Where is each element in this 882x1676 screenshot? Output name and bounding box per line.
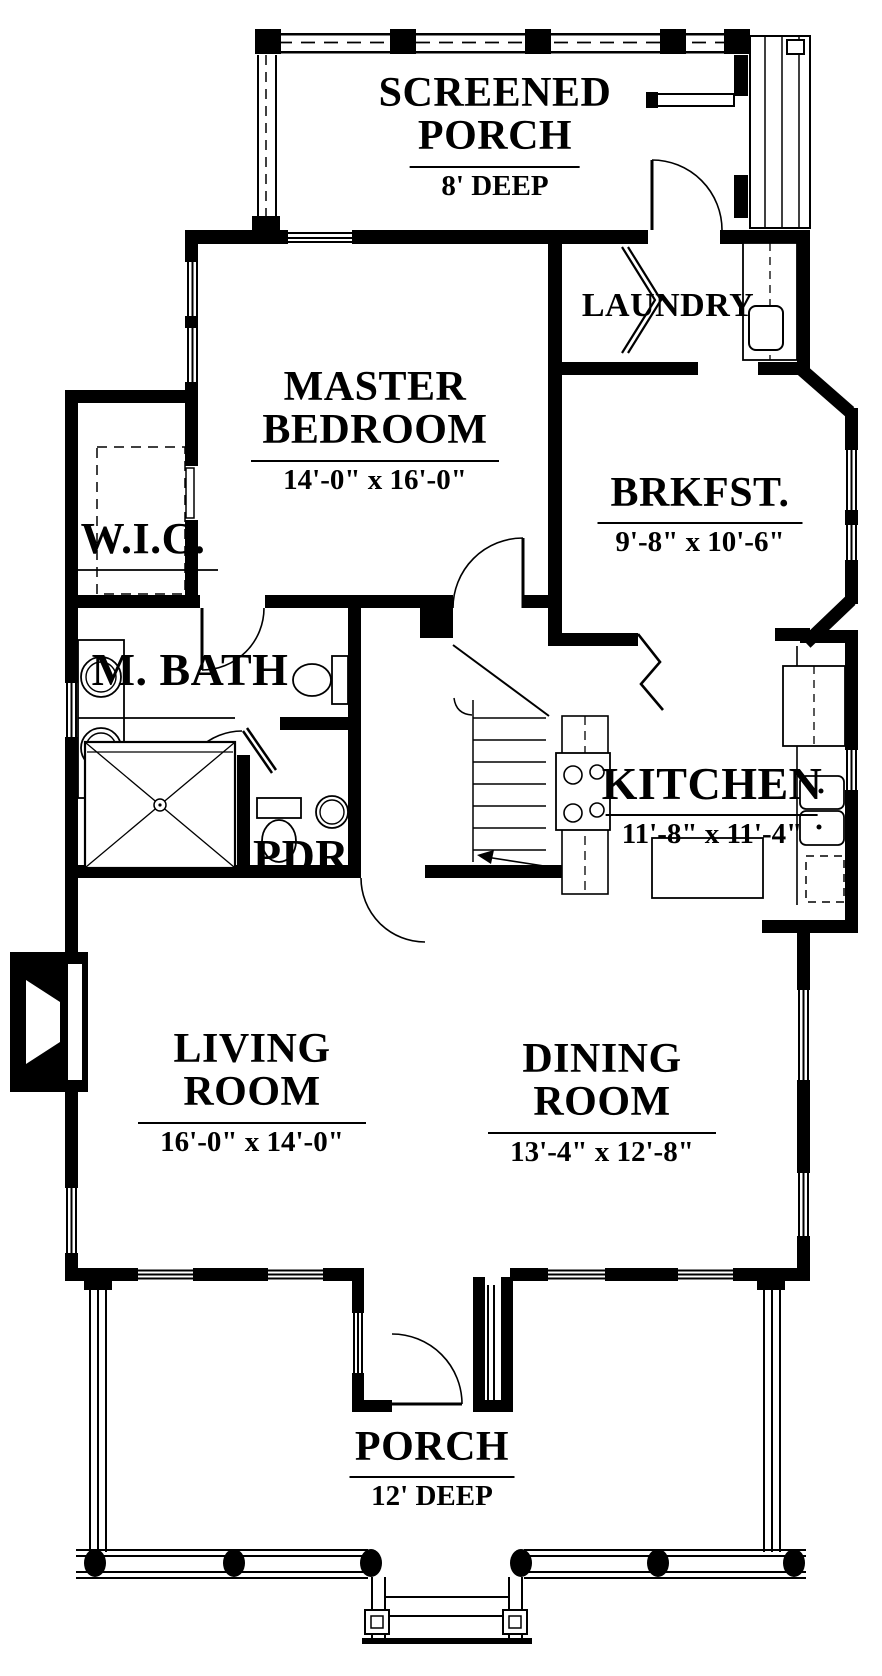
porch-post-icon bbox=[660, 29, 686, 54]
label-underline bbox=[138, 1122, 366, 1124]
room-name: BEDROOM bbox=[262, 409, 487, 452]
room-name: ROOM bbox=[183, 1071, 320, 1114]
fireplace-icon bbox=[10, 952, 88, 1092]
room-label-master-bedroom: MASTER BEDROOM 14'-0" x 16'-0" bbox=[251, 366, 499, 495]
room-name: PDR. bbox=[253, 832, 361, 879]
porch-post-icon bbox=[525, 29, 551, 54]
room-label-walk-in-closet: W.I.C. bbox=[81, 516, 206, 561]
porch-post-icon bbox=[390, 29, 416, 54]
door-swing-icon bbox=[361, 878, 425, 942]
porch-column-icon bbox=[647, 1549, 669, 1577]
room-dims: 12' DEEP bbox=[371, 1481, 493, 1511]
shower-icon bbox=[85, 742, 235, 868]
room-label-living-room: LIVING ROOM 16'-0" x 14'-0" bbox=[138, 1028, 366, 1157]
room-label-front-porch: PORCH 12' DEEP bbox=[350, 1426, 515, 1512]
angled-bay-walls bbox=[802, 370, 851, 643]
room-label-screened-porch: SCREENED PORCH 8' DEEP bbox=[379, 72, 612, 201]
label-underline bbox=[488, 1132, 716, 1134]
porch-post-icon bbox=[255, 29, 281, 54]
room-label-breakfast: BRKFST. 9'-8" x 10'-6" bbox=[598, 472, 803, 558]
wall-break-icon bbox=[638, 634, 663, 710]
room-name: PORCH bbox=[355, 1426, 509, 1469]
porch-column-icon bbox=[84, 1549, 106, 1577]
porch-column-icon bbox=[360, 1549, 382, 1577]
room-label-master-bath: M. BATH bbox=[92, 646, 289, 693]
porch-column-icon bbox=[510, 1549, 532, 1577]
floor-plan-page: SCREENED PORCH 8' DEEP MASTER BEDROOM 14… bbox=[0, 0, 882, 1676]
room-name: PORCH bbox=[418, 115, 572, 158]
room-label-powder-room: PDR. bbox=[253, 832, 361, 879]
label-underline bbox=[251, 460, 499, 462]
room-dims: 14'-0" x 16'-0" bbox=[283, 465, 467, 495]
room-name: W.I.C. bbox=[81, 516, 206, 561]
room-name: LAUNDRY bbox=[582, 288, 754, 323]
room-name: KITCHEN bbox=[602, 760, 823, 807]
room-name: MASTER bbox=[284, 366, 467, 409]
room-name: SCREENED bbox=[379, 72, 612, 115]
room-name: M. BATH bbox=[92, 646, 289, 693]
porch-column-icon bbox=[223, 1549, 245, 1577]
door-swing-icon bbox=[652, 160, 722, 230]
porch-column-icon bbox=[783, 1549, 805, 1577]
wic-door-leaf bbox=[186, 468, 194, 518]
room-dims: 8' DEEP bbox=[441, 171, 548, 201]
room-dims: 11'-8" x 11'-4" bbox=[622, 819, 802, 849]
room-dims: 13'-4" x 12'-8" bbox=[510, 1137, 694, 1167]
label-underline bbox=[350, 1476, 515, 1478]
room-name: BRKFST. bbox=[611, 472, 790, 515]
label-underline bbox=[410, 166, 580, 168]
porch-post-icon bbox=[724, 29, 750, 54]
room-dims: 9'-8" x 10'-6" bbox=[615, 527, 784, 557]
porch-steps-icon bbox=[362, 1577, 532, 1644]
refrigerator-icon bbox=[783, 666, 845, 746]
porch-steps-icon bbox=[750, 36, 810, 228]
label-underline bbox=[606, 814, 818, 816]
room-dims: 16'-0" x 14'-0" bbox=[160, 1127, 344, 1157]
toilet-icon bbox=[293, 656, 348, 704]
room-name: ROOM bbox=[533, 1081, 670, 1124]
door-swing-icon bbox=[453, 538, 523, 608]
room-label-dining-room: DINING ROOM 13'-4" x 12'-8" bbox=[488, 1038, 716, 1167]
front-door bbox=[392, 1334, 462, 1404]
dishwasher-icon bbox=[806, 856, 844, 902]
room-name: LIVING bbox=[173, 1028, 330, 1071]
room-label-laundry: LAUNDRY bbox=[582, 288, 754, 323]
label-underline bbox=[598, 522, 803, 524]
pedestal-sink-icon bbox=[316, 796, 348, 828]
room-name: DINING bbox=[522, 1038, 681, 1081]
room-label-kitchen: KITCHEN 11'-8" x 11'-4" bbox=[602, 760, 823, 850]
